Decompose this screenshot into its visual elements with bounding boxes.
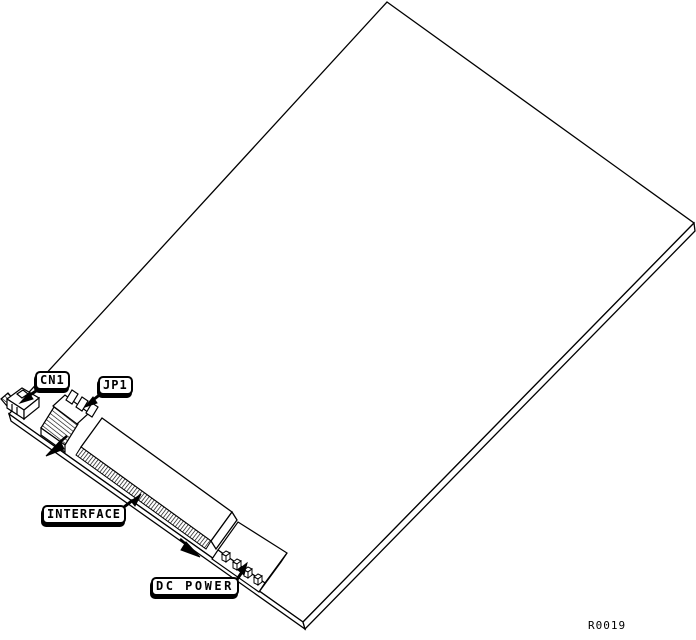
callout-interface-label: INTERFACE (42, 505, 126, 524)
callout-dc-power-label: DC POWER (151, 577, 239, 596)
board-outline (9, 2, 695, 629)
callout-jp1-label: JP1 (98, 376, 133, 395)
callout-cn1-label: CN1 (35, 371, 70, 390)
circuit-board-diagram: CN1 JP1 INTERFACE DC POWER R0019 (0, 0, 696, 640)
reference-code: R0019 (588, 619, 626, 632)
board-line-art (0, 0, 696, 640)
board-top-surface (9, 2, 694, 622)
